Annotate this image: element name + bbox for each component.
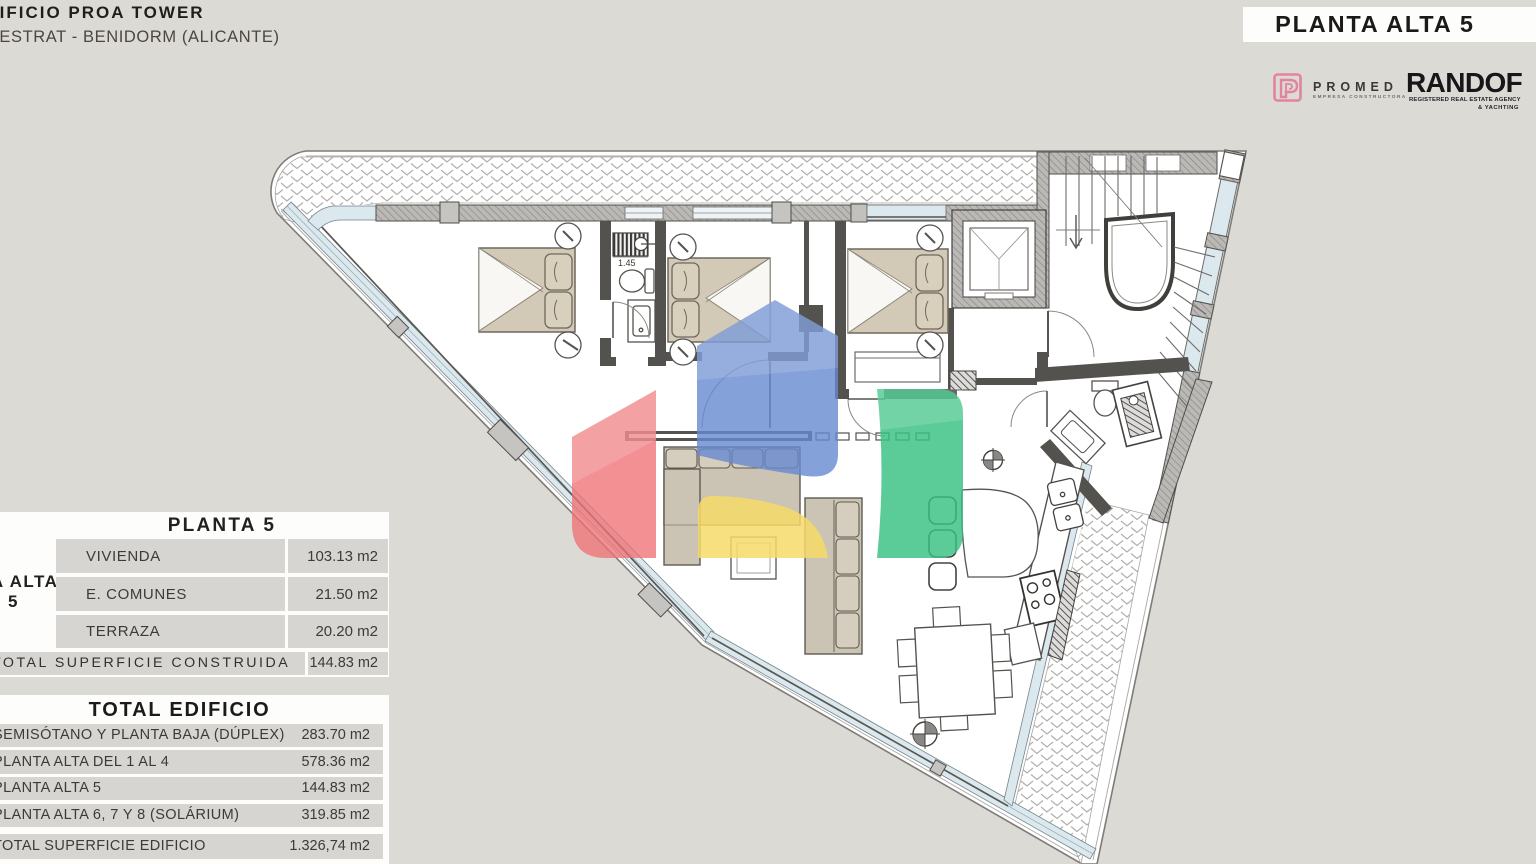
svg-text:1.45: 1.45 — [618, 258, 636, 268]
